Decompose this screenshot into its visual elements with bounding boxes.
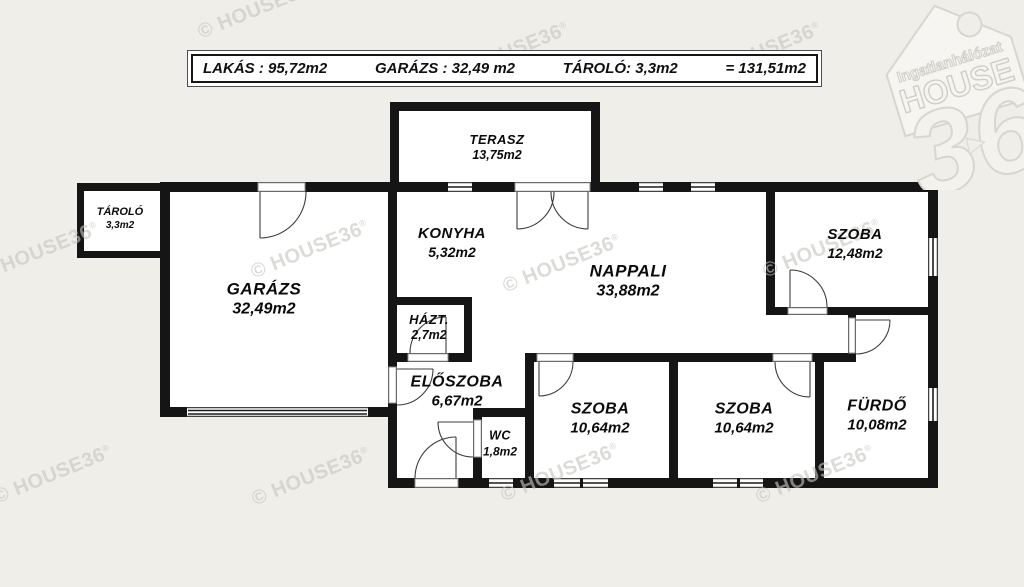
wall-terasz-right [591, 102, 600, 192]
room-label-tarolo: TÁROLÓ 3,3m2 [97, 206, 143, 232]
szoba3-window [928, 235, 938, 279]
nappali-window-1 [636, 182, 666, 192]
wall-garage-left [160, 182, 170, 417]
szoba1-door-opening [537, 354, 573, 361]
summary-garazs: GARÁZS : 32,49 m2 [375, 60, 515, 77]
room-label-konyha: KONYHA 5,32m2 [418, 225, 486, 261]
room-label-garazs: GARÁZS 32,49m2 [227, 278, 302, 319]
wall-terasz-left [390, 102, 399, 192]
konyha-window [445, 182, 475, 192]
garage-hall-door-opening [389, 367, 396, 403]
wall-bottom [388, 478, 938, 488]
szoba2-door-opening [773, 354, 812, 361]
wall-szoba1-left [525, 353, 534, 488]
room-label-hazt: HÁZT. 2,7m2 [409, 312, 449, 344]
terasz-door-opening [515, 183, 590, 191]
garage-gate [183, 407, 372, 417]
wall-szoba1-szoba2 [669, 362, 678, 488]
summary-tarolo: TÁROLÓ: 3,3m2 [563, 60, 678, 77]
room-label-furdo: FÜRDŐ 10,08m2 [847, 397, 906, 436]
room-label-nappali: NAPPALI 33,88m2 [590, 260, 667, 301]
hazt-door-opening [408, 354, 448, 361]
wall-terasz-top [390, 102, 600, 111]
furdo-window [928, 385, 938, 424]
wall-tarolo-bottom [77, 251, 160, 258]
nappali-window-2 [688, 182, 718, 192]
room-label-wc: WC 1,8m2 [483, 429, 517, 460]
wall-right [928, 182, 938, 488]
szoba3-door-opening [788, 308, 827, 314]
wall-garage-divider [388, 182, 397, 488]
garage-door-opening [258, 183, 305, 191]
wall-tarolo-top [77, 183, 160, 191]
wall-szoba3-left [766, 182, 775, 315]
room-label-szoba2: SZOBA 10,64m2 [714, 400, 773, 439]
floorplan-page: © HOUSE36® © HOUSE36® © HOUSE36® © HOUSE… [0, 0, 1024, 587]
room-label-eloszoba: ELŐSZOBA 6,67m2 [411, 373, 504, 412]
wall-hazt-right [464, 297, 472, 362]
area-summary-bar: LAKÁS : 95,72m2 GARÁZS : 32,49 m2 TÁROLÓ… [191, 54, 818, 83]
room-label-szoba1: SZOBA 10,64m2 [570, 400, 629, 439]
wc-door-opening [474, 420, 481, 457]
summary-lakas: LAKÁS : 95,72m2 [203, 60, 327, 77]
room-label-terasz: TERASZ 13,75m2 [470, 132, 525, 164]
summary-total: = 131,51m2 [726, 60, 807, 77]
entrance-door-opening [415, 479, 458, 487]
furdo-door-opening [849, 318, 855, 353]
house36-logo: Ingatlanhálózat HOUSE 36 [867, 0, 1024, 190]
wall-hazt-top [388, 297, 472, 305]
room-label-szoba3: SZOBA 12,48m2 [827, 226, 882, 262]
